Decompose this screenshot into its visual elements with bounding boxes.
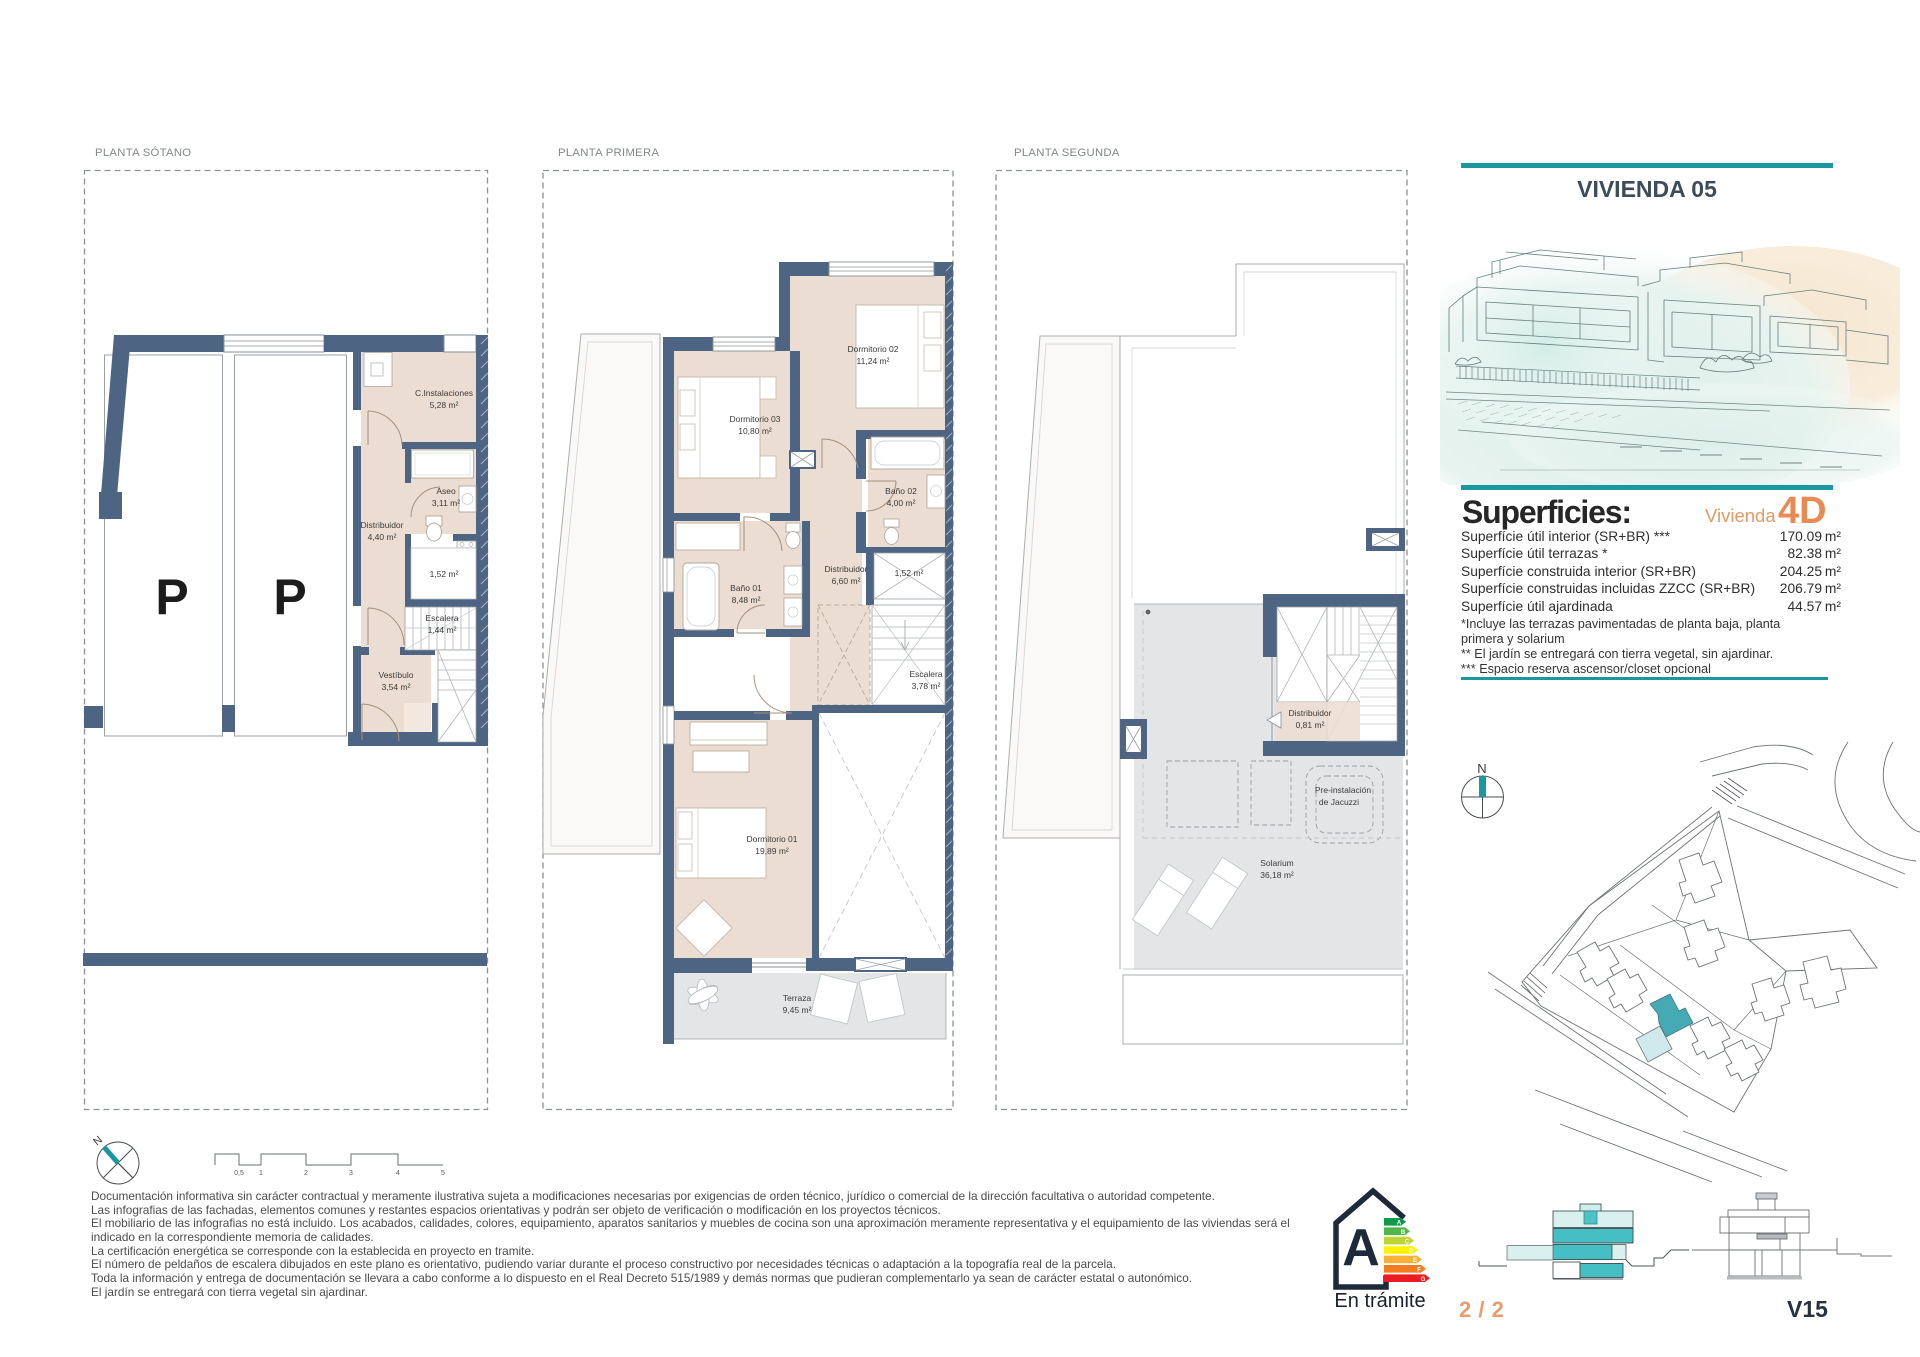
svg-text:1,52 m²: 1,52 m²	[430, 569, 459, 579]
svg-text:4: 4	[396, 1170, 400, 1177]
svg-text:10,80 m²: 10,80 m²	[738, 426, 772, 436]
svg-text:9,45 m²: 9,45 m²	[783, 1005, 812, 1015]
svg-text:Terraza: Terraza	[783, 993, 812, 1003]
svg-text:5: 5	[441, 1170, 445, 1177]
svg-text:19,89 m²: 19,89 m²	[755, 846, 789, 856]
svg-text:Baño 02: Baño 02	[885, 486, 917, 496]
svg-text:1: 1	[259, 1170, 263, 1177]
svg-text:Distribuidor: Distribuidor	[1289, 708, 1332, 718]
svg-text:Aseo: Aseo	[436, 486, 456, 496]
svg-text:Vestíbulo: Vestíbulo	[379, 670, 414, 680]
svg-text:3,54 m²: 3,54 m²	[382, 682, 411, 692]
svg-text:Dormitorio 01: Dormitorio 01	[746, 834, 797, 844]
svg-text:Dormitorio 02: Dormitorio 02	[847, 344, 898, 354]
svg-text:de Jacuzzi: de Jacuzzi	[1319, 797, 1359, 807]
svg-text:Escalera: Escalera	[425, 613, 458, 623]
svg-text:N: N	[91, 1134, 105, 1148]
svg-text:11,24 m²: 11,24 m²	[857, 356, 890, 366]
svg-text:3,78 m²: 3,78 m²	[912, 681, 941, 691]
svg-text:36,18 m²: 36,18 m²	[1260, 870, 1294, 880]
svg-text:0,5: 0,5	[234, 1170, 244, 1177]
svg-text:0,81 m²: 0,81 m²	[1296, 720, 1325, 730]
svg-text:Distribuidor: Distribuidor	[361, 520, 404, 530]
svg-text:1,52 m²: 1,52 m²	[895, 568, 924, 578]
svg-text:4,00 m²: 4,00 m²	[887, 498, 916, 508]
svg-text:8,48 m²: 8,48 m²	[732, 595, 761, 605]
svg-text:3,11 m²: 3,11 m²	[432, 498, 460, 508]
svg-text:Pre-instalación: Pre-instalación	[1315, 785, 1371, 795]
svg-text:Solarium: Solarium	[1260, 858, 1294, 868]
svg-text:5,28 m²: 5,28 m²	[430, 400, 459, 410]
svg-text:Dormitorio 03: Dormitorio 03	[729, 414, 780, 424]
svg-text:2: 2	[304, 1170, 308, 1177]
svg-text:6,60 m²: 6,60 m²	[832, 576, 861, 586]
svg-text:Baño 01: Baño 01	[730, 583, 762, 593]
svg-text:3: 3	[349, 1170, 353, 1177]
svg-text:1,44 m²: 1,44 m²	[428, 625, 457, 635]
svg-text:Escalera: Escalera	[909, 669, 942, 679]
svg-text:P: P	[273, 569, 306, 625]
svg-text:Distribuidor: Distribuidor	[825, 564, 868, 574]
svg-text:4,40 m²: 4,40 m²	[368, 532, 397, 542]
svg-text:P: P	[155, 569, 188, 625]
svg-text:C.Instalaciones: C.Instalaciones	[415, 388, 473, 398]
